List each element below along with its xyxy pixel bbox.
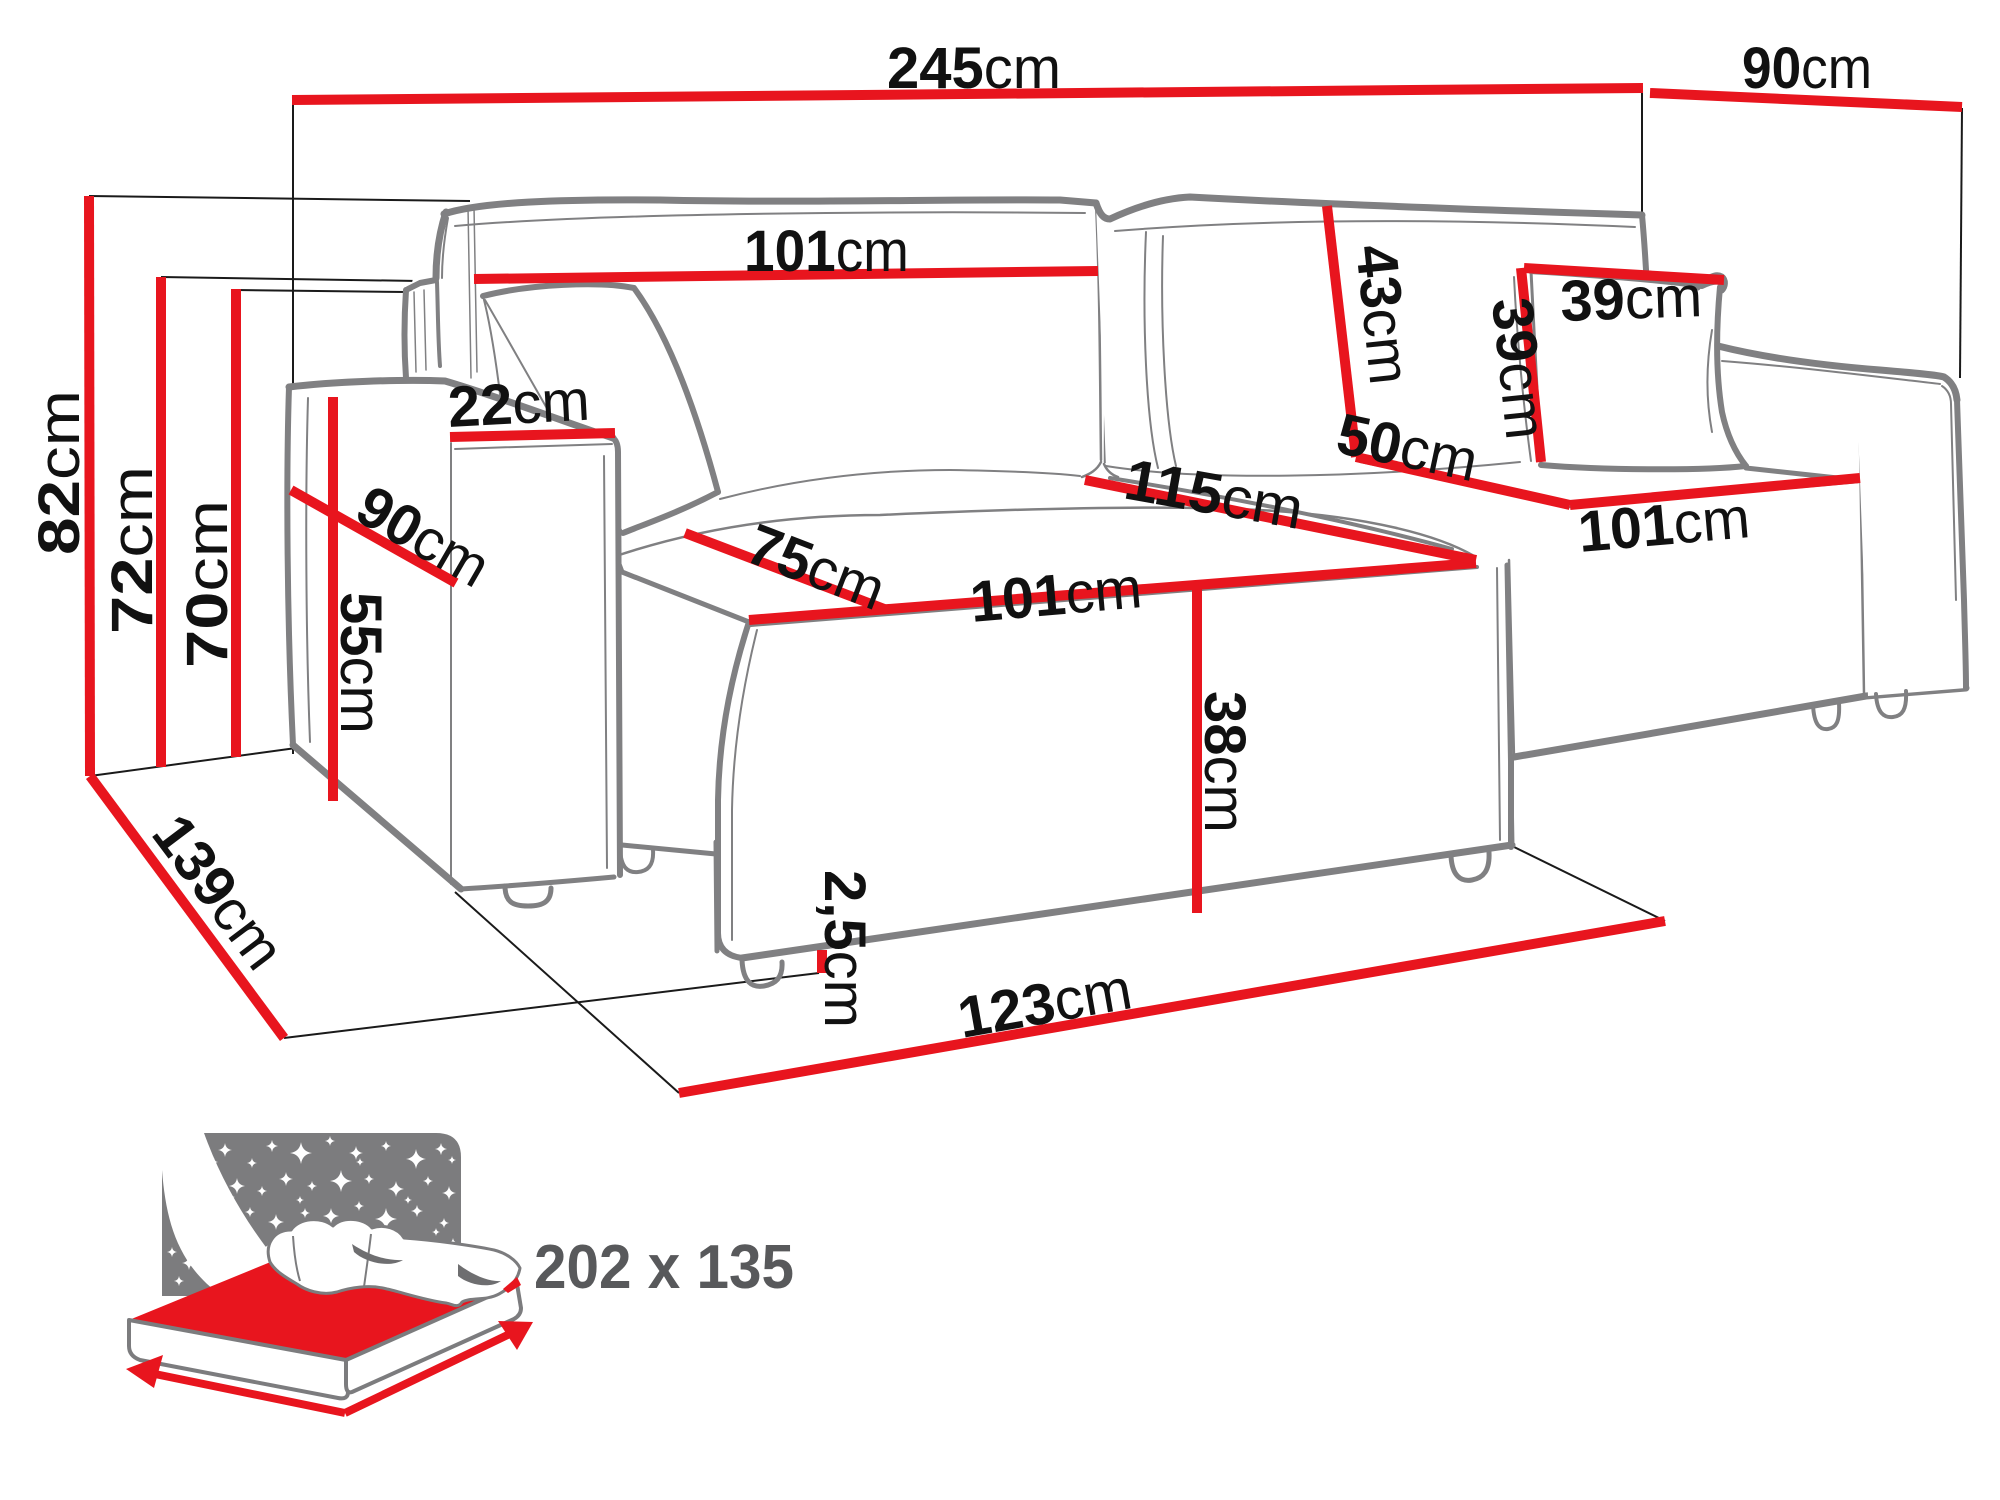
svg-text:72cm: 72cm xyxy=(100,466,165,634)
svg-text:90cm: 90cm xyxy=(1742,36,1872,101)
svg-text:22cm: 22cm xyxy=(446,368,591,440)
svg-text:82cm: 82cm xyxy=(27,390,92,555)
svg-text:70cm: 70cm xyxy=(175,500,240,668)
svg-text:55cm: 55cm xyxy=(328,592,393,734)
svg-text:202 x 135: 202 x 135 xyxy=(534,1233,794,1302)
svg-text:2,5cm: 2,5cm xyxy=(812,870,877,1028)
svg-text:101cm: 101cm xyxy=(744,219,909,284)
svg-text:38cm: 38cm xyxy=(1192,691,1257,833)
svg-text:39cm: 39cm xyxy=(1559,264,1703,334)
svg-text:245cm: 245cm xyxy=(887,36,1061,101)
